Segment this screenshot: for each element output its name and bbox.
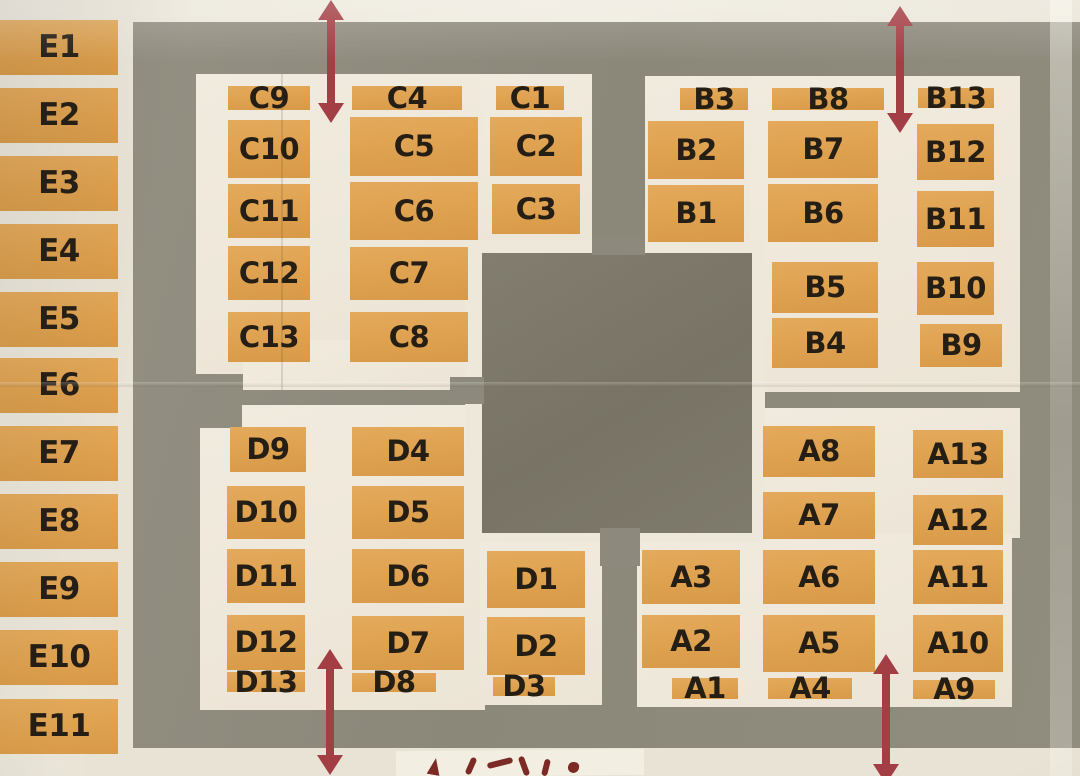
- two-way-arrow-top-right: [887, 6, 913, 133]
- block-E2: E2: [0, 88, 118, 143]
- venue-map-photo: E1E2E3E4E5E6E7E8E9E10E11 C9C10C11C12C13C…: [0, 0, 1080, 776]
- island-D-top: [242, 405, 485, 710]
- two-way-arrow-bottom-left: [317, 649, 343, 775]
- island-B-right: [750, 76, 1020, 392]
- block-E9: E9: [0, 562, 118, 617]
- block-E7: E7: [0, 426, 118, 481]
- paper-fold-highlight: [1050, 0, 1072, 776]
- block-E5: E5: [0, 292, 118, 347]
- road-connector-bottom: [600, 528, 640, 566]
- block-E8: E8: [0, 494, 118, 549]
- block-E4: E4: [0, 224, 118, 279]
- block-E10: E10: [0, 630, 118, 685]
- road-connector-top: [592, 237, 645, 255]
- island-A-lower: [637, 533, 1012, 707]
- island-A-upper: [752, 408, 1020, 538]
- island-C-right: [482, 74, 592, 252]
- island-D-right: [480, 533, 602, 705]
- two-way-arrow-bottom-right: [873, 654, 899, 776]
- paper-crease-vertical: [281, 74, 283, 390]
- two-way-arrow-top-left: [318, 0, 344, 123]
- center-building: [482, 253, 752, 533]
- block-E11: E11: [0, 699, 118, 754]
- paper-crease-horizontal: [0, 382, 1080, 387]
- block-E1: E1: [0, 20, 118, 75]
- block-E3: E3: [0, 156, 118, 211]
